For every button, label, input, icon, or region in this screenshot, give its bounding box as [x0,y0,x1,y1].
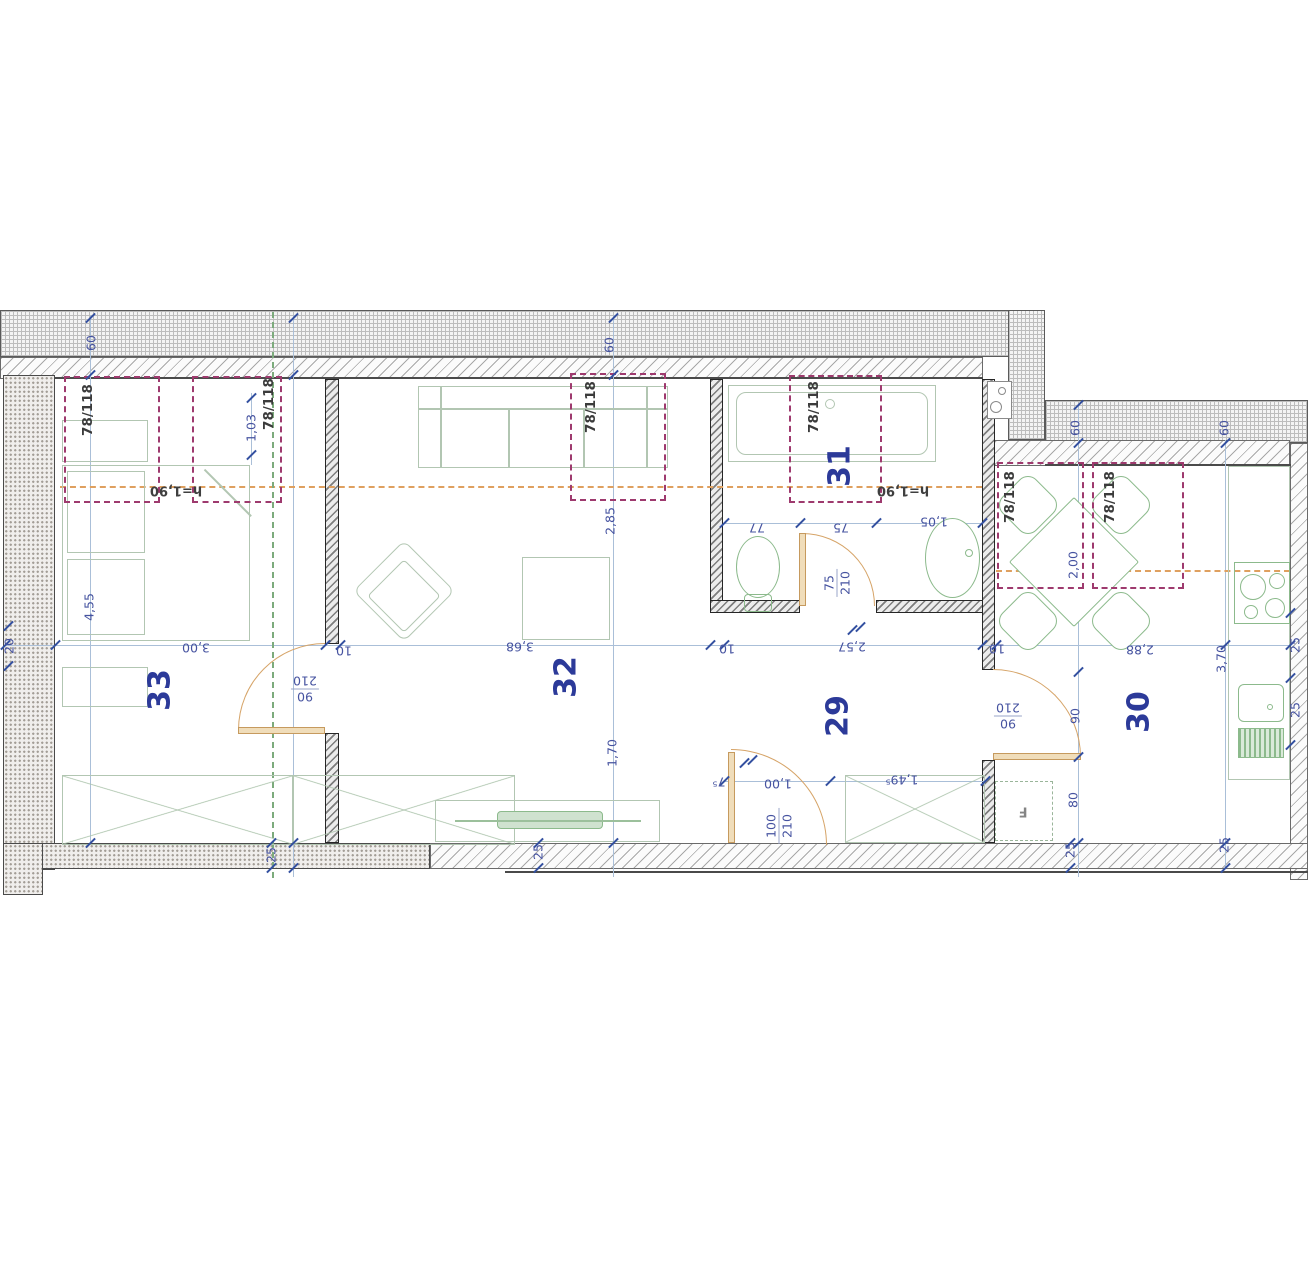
niche-appliance-burner [998,387,1006,395]
dim-label: 25 [1288,637,1303,653]
stove-burner [1269,573,1285,589]
room-number: 30 [1122,691,1157,733]
dim-label: 60 [602,337,617,353]
dim-label: 1,05 [920,515,948,530]
dim-label: 75 [833,521,849,536]
kitchen-sink [1238,684,1284,722]
dim-label: 2,00 [1066,551,1081,579]
dim-label: 3,00 [182,641,210,656]
door-height: 210 [287,674,323,689]
roof-window-label: 78/118 [1002,471,1018,523]
dim-label: 1,00 [764,777,792,792]
outer-wall-corner [1008,310,1045,440]
roof-window-label: 78/118 [806,381,822,433]
door-size-label: 90210 [287,674,323,705]
door-size-label: 75210 [822,565,853,601]
dim-label: 25 [1063,842,1078,858]
roof-window-label: 78/118 [1102,471,1118,523]
height-label: h=1,90 [150,483,202,498]
fridge-label: F [1019,804,1028,819]
door-width: 75 [822,569,838,597]
dim-label: 10 [336,644,352,659]
sofa-cushion-divider [508,408,510,468]
room-number: 29 [821,695,856,737]
stove-burner [1265,598,1285,618]
dim-label: 25 [1288,702,1303,718]
coffee-table [522,557,610,640]
outer-wall-bottom-right [430,843,1308,869]
door-height: 210 [780,808,795,844]
sofa-armrest [440,386,442,468]
door-height: 210 [990,701,1026,716]
toilet [736,536,780,598]
dim-label: 4,55 [82,593,97,621]
tv-shelf-line [455,820,641,822]
wardrobe [62,775,293,845]
bath-faucet [965,549,973,557]
roof-window-label: 78/118 [261,378,277,430]
door-width: 100 [764,808,780,844]
wall-bath-bottom-right [876,600,995,613]
dim-label: 7⁵ [713,775,726,790]
roof-window-label: 78/118 [583,381,599,433]
stove-burner [1240,574,1266,600]
dim-label: 2,88 [1126,643,1154,658]
dim-label: 80 [1066,792,1081,808]
stove-burner [1244,605,1258,619]
roof-window [64,376,160,503]
floor-plan: 78/11878/11878/11878/11878/11878/1186060… [0,0,1308,1280]
door-29-30-leaf [993,753,1081,760]
entry-door-leaf [728,752,735,843]
door-size-label: 100210 [764,808,795,844]
wall-33-32-upper [325,379,339,644]
door-width: 90 [994,716,1022,732]
outer-wall-bottom-corner [3,843,43,895]
roof-window-label: 78/118 [80,384,96,436]
wall-hall-30-upper [982,379,995,670]
dim-label: 10 [719,642,735,657]
dim-label: 77 [749,521,765,536]
dim-label: 1,70 [605,739,620,767]
door-width: 90 [291,689,319,705]
dim-label: 60 [1068,420,1083,436]
bath-sink [925,518,980,598]
dim-label: 1,49⁵ [886,773,919,788]
dim-label: 3,70 [1214,645,1229,673]
bath-door-leaf [799,533,806,606]
niche-appliance-burner [990,401,1002,413]
dim-label: 90 [1068,708,1083,724]
room-number: 33 [143,669,178,711]
bed-pillow [67,559,145,635]
dim-label: 60 [1217,420,1232,436]
wall-edge-line [505,871,1308,873]
dim-label: 2,85 [603,507,618,535]
sink-drainer [1238,728,1284,758]
dim-label: 60 [84,335,99,351]
dim-label: 25 [1217,837,1232,853]
dim-label: 2,57 [838,640,866,655]
outer-wall-topright-grid [1045,400,1308,443]
wall-32-31 [710,379,723,613]
dim-label: 10 [989,642,1005,657]
toilet-base [744,594,772,612]
outer-wall-top-grid [0,310,1013,357]
door-size-label: 90210 [990,701,1026,732]
dim-label: 3,68 [506,640,534,655]
dim-label: 25 [531,844,546,860]
dim-label: 1,03 [244,414,259,442]
room-number: 31 [823,445,858,487]
height-label: h=1,90 [877,483,929,498]
bedroom-bench [62,667,148,707]
outer-wall-right [1290,443,1308,880]
door-height: 210 [838,565,853,601]
dim-label: 20 [2,638,17,654]
kitchen-faucet [1267,704,1273,710]
door-33-32-leaf [238,727,325,734]
dim-label: 25 [264,847,279,863]
outer-wall-bottom-left [3,843,430,869]
room-number: 32 [549,656,584,698]
